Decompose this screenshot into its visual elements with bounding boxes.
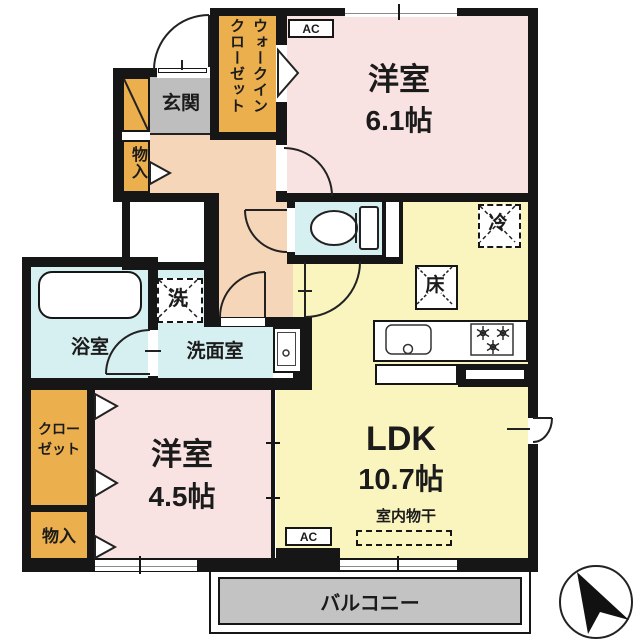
void-space — [130, 202, 204, 262]
washer-label: 洗 — [160, 287, 196, 311]
ac-upper-label: AC — [302, 22, 319, 36]
ldk-size: 10.7帖 — [330, 462, 472, 500]
bedroom2-name: 洋室 — [122, 436, 242, 474]
wall — [528, 8, 538, 572]
indoor-drying-rect — [356, 530, 452, 546]
wall — [31, 505, 87, 512]
wall — [22, 378, 312, 390]
ac-badge-upper: AC — [288, 19, 334, 38]
bathtub — [38, 271, 142, 319]
wall — [122, 202, 130, 262]
kitchen-counter — [373, 320, 528, 362]
wic-door-slot — [276, 45, 287, 102]
wall — [210, 8, 219, 140]
closet-label: クロー ゼット — [33, 420, 85, 464]
balcony: バルコニー — [209, 570, 531, 634]
front-door-leaf — [158, 68, 207, 73]
wall — [113, 68, 122, 202]
wic-label-line1: ウォークイン — [249, 18, 270, 130]
bedroom1-name: 洋室 — [339, 61, 459, 99]
wic-label-line2: クローゼット — [226, 18, 247, 130]
balcony-label: バルコニー — [320, 587, 420, 616]
bedroom1-size: 6.1帖 — [339, 103, 459, 139]
ldk-side-door-slot — [528, 418, 538, 444]
sliding-partition — [271, 390, 275, 558]
closet-label-line1: クロー — [33, 420, 85, 440]
vanity-inner — [277, 332, 296, 366]
hallway-lower-floor — [219, 193, 293, 317]
wall — [87, 387, 95, 558]
ac-lower-label: AC — [300, 530, 317, 544]
ldk-door-threshold — [293, 264, 312, 317]
storage-lower-label: 物入 — [31, 526, 87, 548]
north-compass — [560, 566, 632, 638]
wall — [204, 193, 219, 327]
fridge-label: 冷 — [480, 212, 516, 236]
ldk-floor-2 — [312, 264, 403, 322]
shoe-cabinet — [122, 77, 150, 132]
washroom-door-slot — [221, 318, 265, 326]
bedroom2-size: 4.5帖 — [122, 479, 242, 515]
closet-label-line2: ゼット — [33, 440, 85, 460]
washroom-label: 洗面室 — [170, 340, 260, 364]
bedroom1-door-slot — [276, 145, 287, 191]
balcony-slab: バルコニー — [218, 577, 522, 625]
entrance-label: 玄関 — [152, 92, 210, 116]
bath-door-slot — [148, 330, 158, 376]
storage-upper-label: 物入 — [125, 146, 149, 190]
wall — [276, 193, 538, 202]
wall — [22, 257, 158, 267]
window-bottom-left — [95, 560, 197, 571]
bath-label: 浴室 — [59, 336, 121, 360]
indoor-drying-label: 室内物干 — [346, 508, 466, 526]
bedroom2-floor — [95, 390, 272, 558]
wall — [22, 257, 31, 572]
storage-upper-text: 物入 — [125, 146, 149, 190]
window-top — [345, 8, 457, 17]
toilet-floor — [295, 202, 382, 255]
kitchen-lower-cabinet — [375, 364, 458, 385]
kitchen-return-slot — [466, 370, 524, 379]
wall — [276, 548, 340, 562]
ac-badge-lower: AC — [285, 527, 332, 546]
floor-storage-label: 床 — [417, 274, 453, 298]
pipe-space — [386, 202, 399, 257]
wic-label: ウォークイン クローゼット — [221, 18, 275, 130]
toilet-door-slot — [287, 208, 295, 252]
hallway-upper-floor — [150, 135, 276, 193]
floor-plan: AC AC — [0, 0, 640, 640]
ldk-name: LDK — [340, 420, 462, 460]
